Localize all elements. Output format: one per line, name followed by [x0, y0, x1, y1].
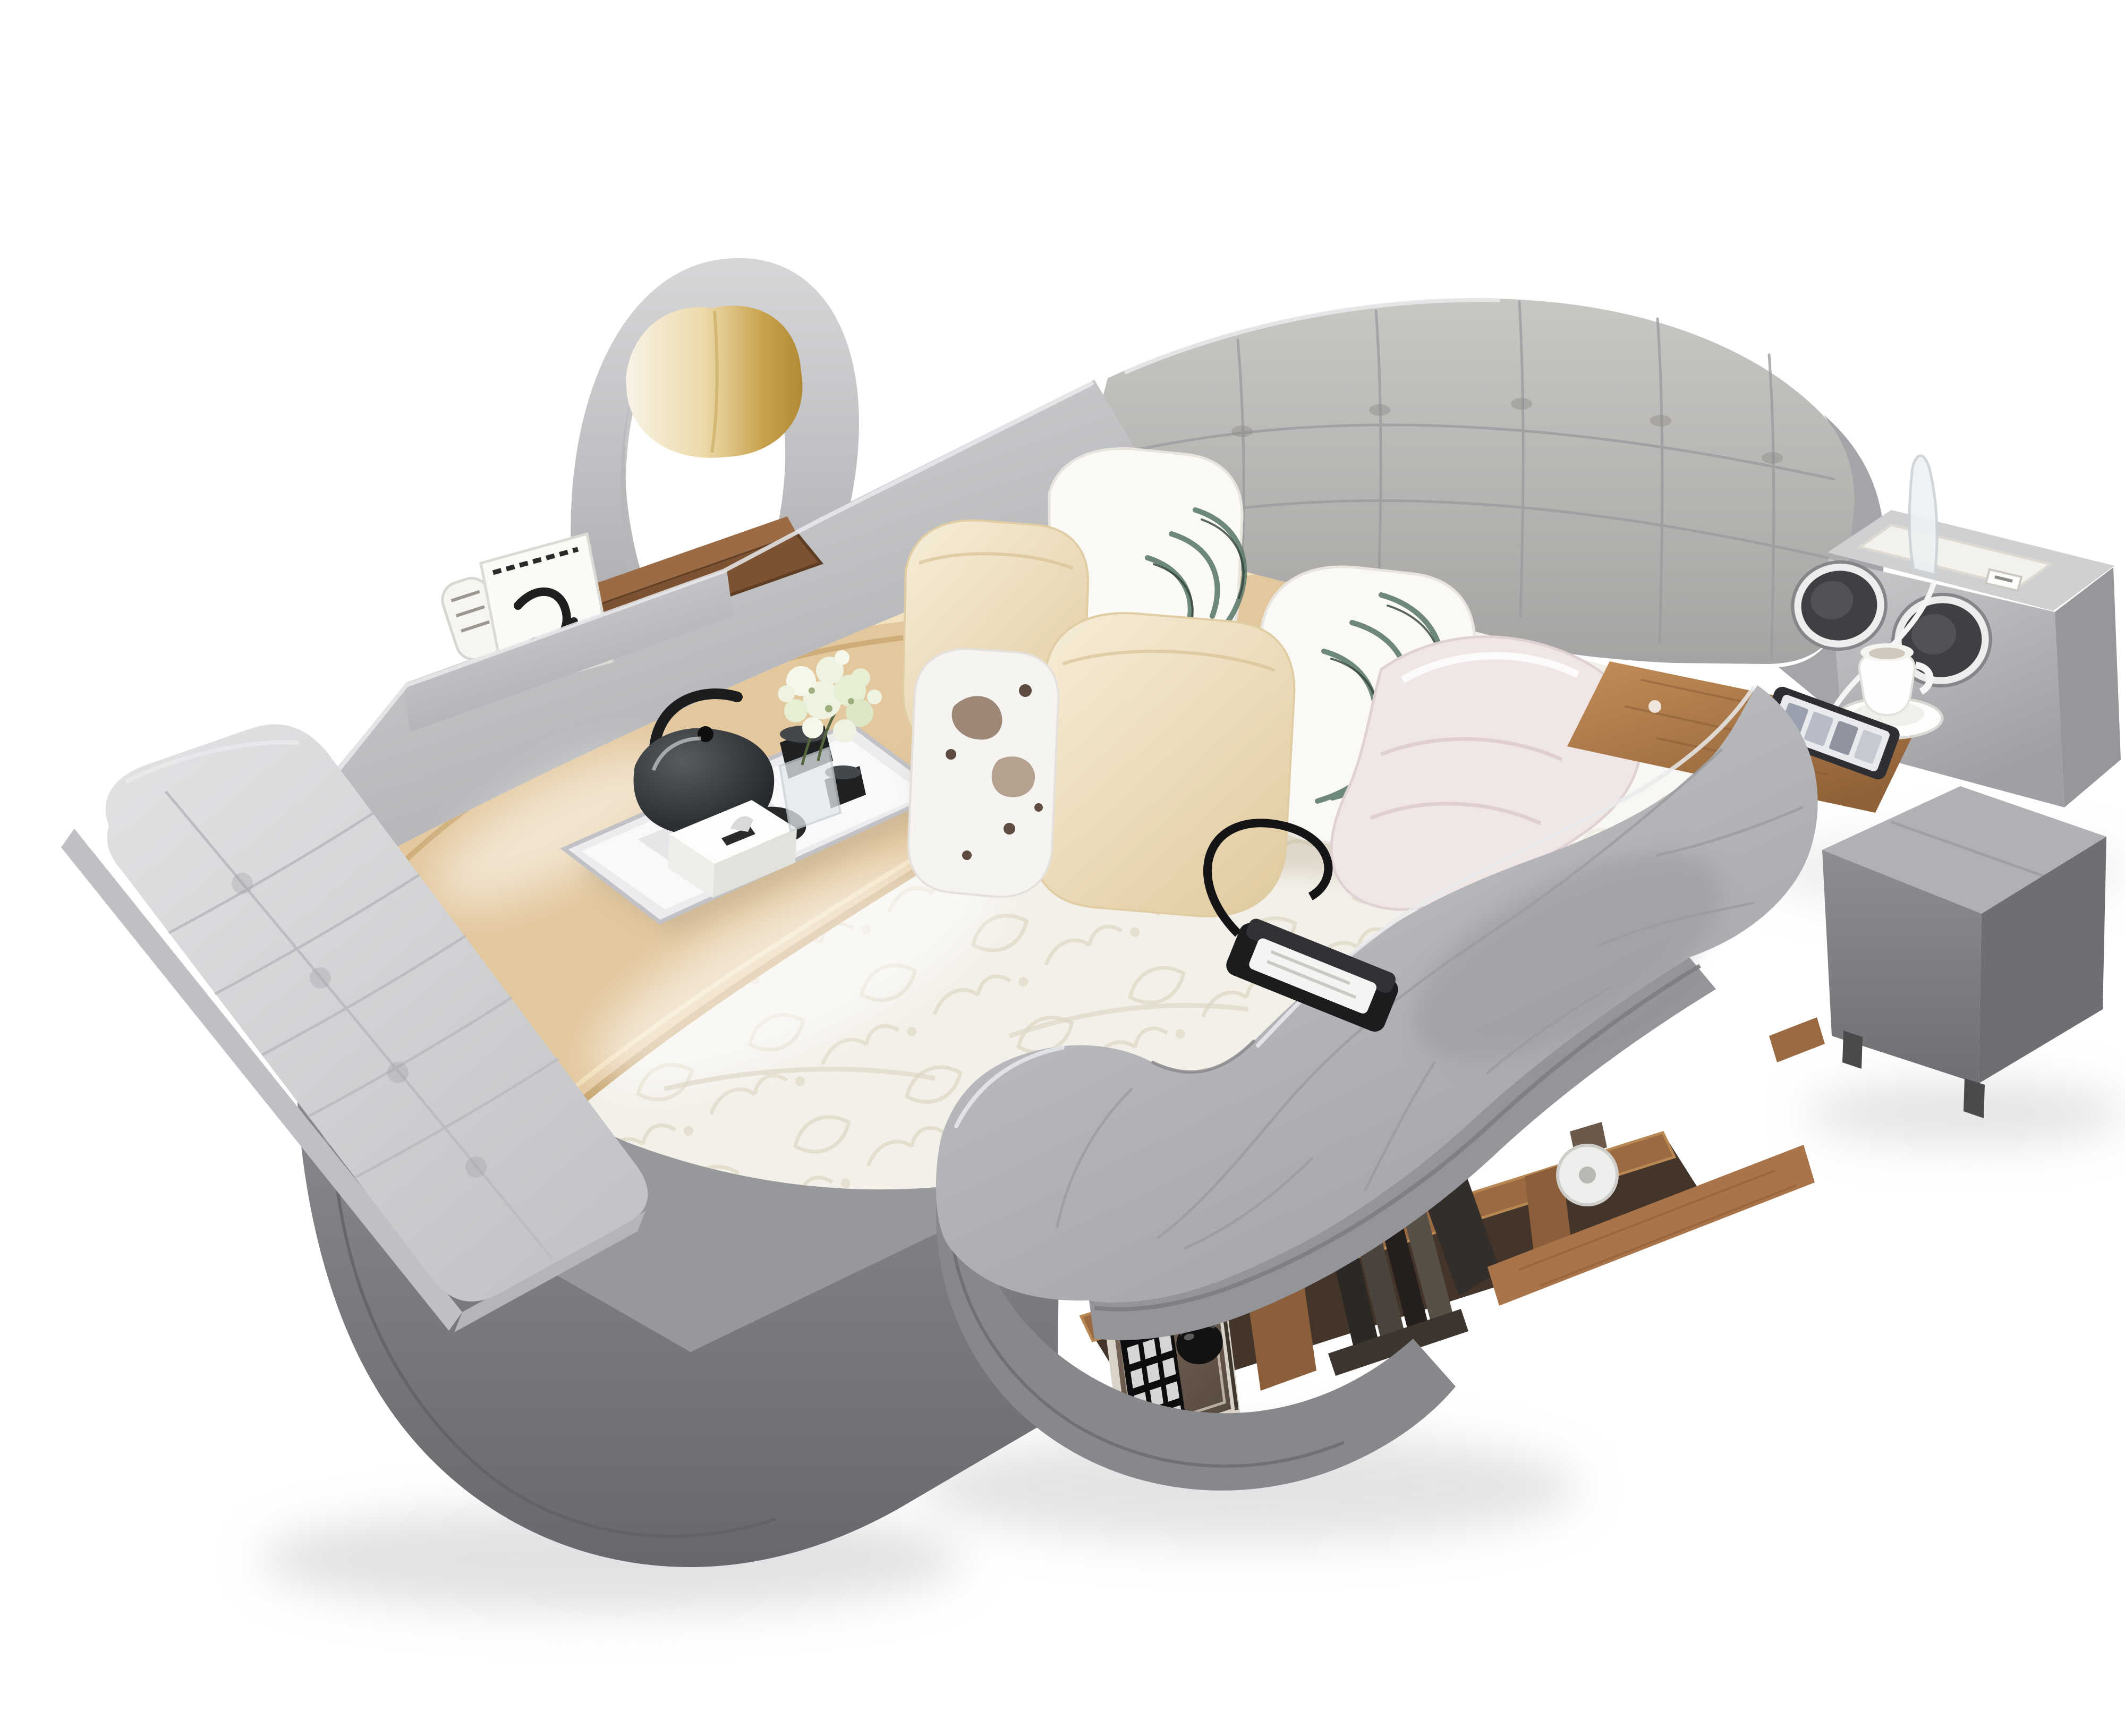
smart-bed-product-photo: Studio photo on a white background of a …	[0, 0, 2125, 1736]
printed-accent-pillow	[908, 649, 1058, 897]
smart-bed-illustration: Multifunctional smart bed	[0, 0, 2125, 1736]
cream-pillow-front	[1032, 613, 1295, 916]
